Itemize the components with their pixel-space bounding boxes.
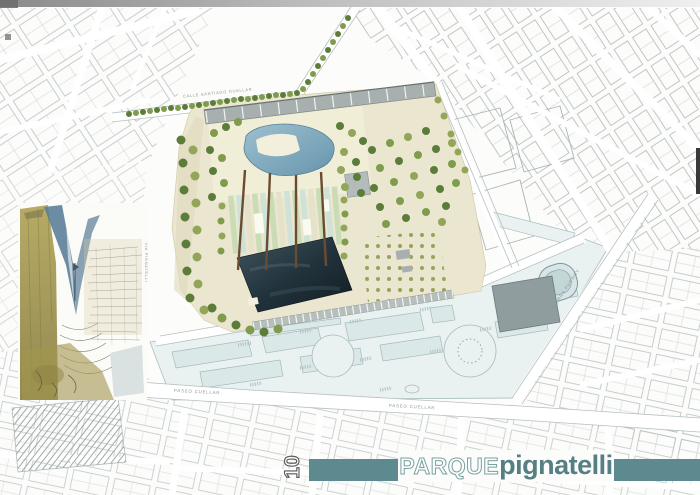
title-solid-text: pignatelli <box>499 450 613 480</box>
title-outline-text: PARQUE <box>399 451 499 481</box>
grey-platform-building <box>492 276 560 332</box>
inset-sketch <box>18 203 147 400</box>
title-text-panel: PARQUEpignatelli <box>398 450 614 482</box>
scan-artifact-speck <box>5 34 11 40</box>
parking-hatch-area <box>12 398 126 472</box>
sheet-number: 10 <box>281 452 311 482</box>
round-plaza-east <box>444 325 496 377</box>
site-plan-svg <box>0 0 700 495</box>
orchard-grid <box>360 230 448 302</box>
scan-artifact-right-edge <box>696 148 700 194</box>
round-plaza-west <box>312 335 354 377</box>
scanned-plan-sheet: PASEO CUELLAR PASEO CUELLAR CALLE SANTIA… <box>0 0 700 495</box>
street-label-via-pignatelli: VIA PIGNATELLI <box>144 243 149 283</box>
scan-artifact-corner <box>0 0 18 8</box>
scan-artifact-top-band <box>0 0 700 7</box>
